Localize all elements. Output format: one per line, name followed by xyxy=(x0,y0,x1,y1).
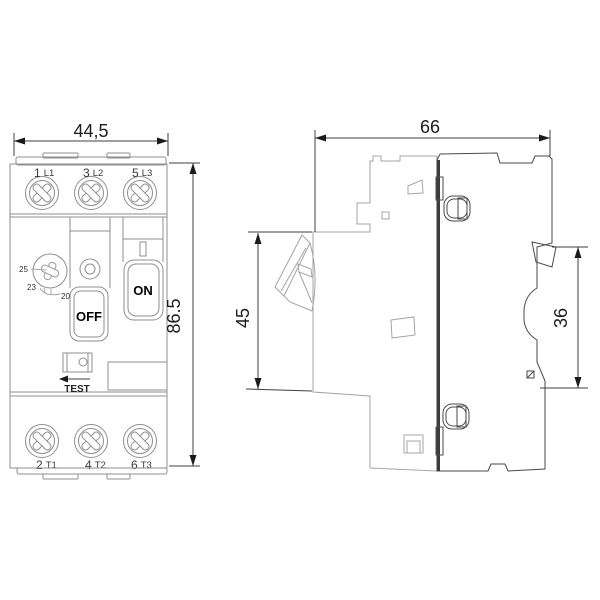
side-rear-body xyxy=(437,153,552,471)
test-label: TEST xyxy=(64,384,90,395)
side-square-top xyxy=(382,212,389,219)
front-view: 1L1 3L2 5L3 25 23 20 OFF xyxy=(10,153,167,479)
technical-drawing-svg: 1L1 3L2 5L3 25 23 20 OFF xyxy=(0,0,600,600)
dial-value-25: 25 xyxy=(19,265,28,274)
test-button-front: TEST xyxy=(59,353,92,395)
on-label: ON xyxy=(133,283,153,298)
terminal-label-top-1: 1L1 xyxy=(34,166,54,180)
dimension-width-front: 44,5 xyxy=(14,121,168,156)
current-adjust-dial: 25 23 20 xyxy=(19,254,70,301)
side-window-mid xyxy=(391,317,415,338)
test-arrow-icon xyxy=(59,376,68,383)
dim-value-86-5: 86.5 xyxy=(164,298,184,333)
screw-icon xyxy=(26,425,59,458)
dimension-rail-recess: 36 xyxy=(540,247,588,388)
dial-value-20: 20 xyxy=(61,292,70,301)
terminal-screws-top xyxy=(26,177,157,210)
off-label: OFF xyxy=(76,309,102,324)
terminal-clamp-top-icon xyxy=(444,196,470,221)
dim-value-66: 66 xyxy=(420,117,440,137)
dim-value-45: 45 xyxy=(233,308,253,328)
terminal-label-top-3: 3L2 xyxy=(83,166,103,180)
dimension-front-depth: 45 xyxy=(233,232,312,391)
label-window xyxy=(108,362,167,390)
side-view xyxy=(275,153,556,471)
drawing-canvas: 1L1 3L2 5L3 25 23 20 OFF xyxy=(0,0,600,600)
terminal-label-bottom-4: 4T2 xyxy=(85,458,106,472)
side-rocker-button xyxy=(275,235,315,311)
off-button-front: OFF xyxy=(70,217,110,341)
din-clip xyxy=(532,242,556,267)
screw-icon xyxy=(124,177,157,210)
terminal-label-bottom-2: 2T1 xyxy=(36,458,57,472)
terminal-label-top-5: 5L3 xyxy=(132,166,152,180)
side-window-top xyxy=(408,180,423,194)
dim-value-44-5: 44,5 xyxy=(73,121,108,141)
dimension-height-front: 86.5 xyxy=(164,163,200,466)
side-front-housing xyxy=(313,156,437,471)
dim-value-36: 36 xyxy=(551,308,571,328)
screw-icon xyxy=(26,177,59,210)
side-square-bottom-inner xyxy=(407,441,420,453)
terminal-screws-bottom xyxy=(26,425,157,458)
screw-icon xyxy=(124,425,157,458)
terminal-clamp-bottom-icon xyxy=(443,404,469,429)
screw-icon xyxy=(75,425,108,458)
dial-value-23: 23 xyxy=(27,283,36,292)
on-button-front: ON xyxy=(123,217,163,320)
terminal-label-bottom-6: 6T3 xyxy=(131,458,152,472)
screw-icon xyxy=(75,177,108,210)
dimension-width-side: 66 xyxy=(315,117,550,232)
front-top-plate xyxy=(16,153,166,165)
